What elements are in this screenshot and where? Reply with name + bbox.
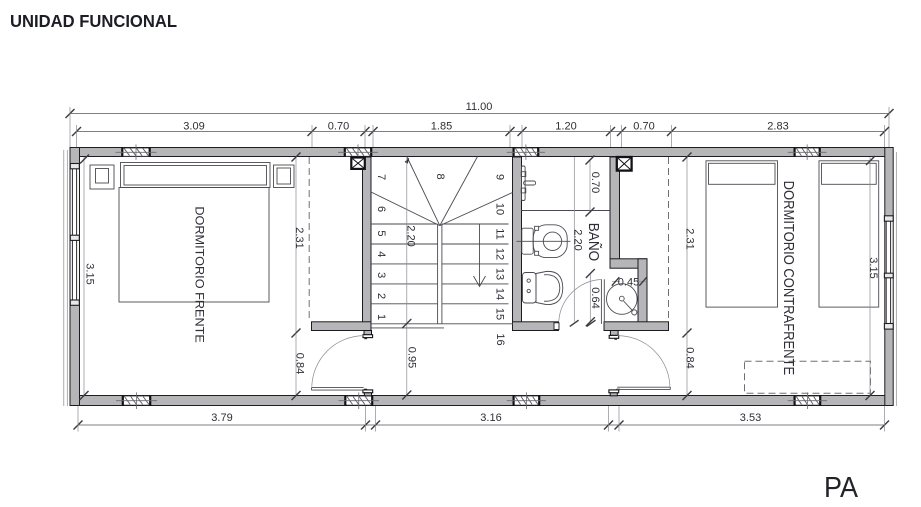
svg-text:2.20: 2.20 [405,225,417,246]
svg-text:0.95: 0.95 [405,347,417,368]
svg-text:5: 5 [375,230,387,236]
svg-text:3.16: 3.16 [480,412,501,424]
svg-text:11: 11 [493,228,505,239]
svg-text:3.53: 3.53 [740,412,761,424]
svg-text:0.84: 0.84 [294,353,306,374]
svg-text:3: 3 [375,272,387,278]
svg-text:4: 4 [375,251,387,257]
svg-text:10: 10 [493,203,505,215]
svg-text:0.84: 0.84 [684,347,696,368]
svg-text:0.64: 0.64 [589,287,601,308]
svg-text:BAÑO: BAÑO [585,223,602,262]
svg-text:UNIDAD FUNCIONAL: UNIDAD FUNCIONAL [10,11,177,31]
svg-text:DORMITORIO CONTRAFRENTE: DORMITORIO CONTRAFRENTE [780,181,796,376]
svg-text:0.45: 0.45 [618,277,639,289]
svg-text:2.31: 2.31 [293,227,305,248]
svg-text:1.85: 1.85 [431,121,452,133]
svg-text:6: 6 [375,206,387,212]
svg-text:0.70: 0.70 [633,121,654,133]
svg-text:2.83: 2.83 [767,121,788,133]
svg-text:2.20: 2.20 [572,229,584,250]
svg-text:8: 8 [434,173,446,179]
svg-text:DORMITORIO FRENTE: DORMITORIO FRENTE [192,206,206,343]
svg-text:3.15: 3.15 [84,263,96,284]
svg-text:PA: PA [824,472,859,504]
svg-text:11.00: 11.00 [466,101,493,113]
svg-text:0.70: 0.70 [589,172,601,193]
svg-text:7: 7 [375,174,387,180]
svg-text:0.70: 0.70 [328,121,349,133]
svg-text:12: 12 [493,248,505,260]
svg-text:2: 2 [375,293,387,299]
svg-text:9: 9 [493,174,505,180]
svg-text:3.09: 3.09 [183,121,204,133]
svg-text:1: 1 [375,314,387,320]
svg-text:1.20: 1.20 [555,121,576,133]
svg-text:2.31: 2.31 [684,228,696,249]
svg-text:14: 14 [493,288,505,300]
svg-text:3.15: 3.15 [867,257,879,278]
svg-text:15: 15 [493,308,505,320]
svg-text:3.79: 3.79 [211,412,232,424]
svg-text:13: 13 [493,268,505,280]
svg-text:16: 16 [494,333,506,345]
